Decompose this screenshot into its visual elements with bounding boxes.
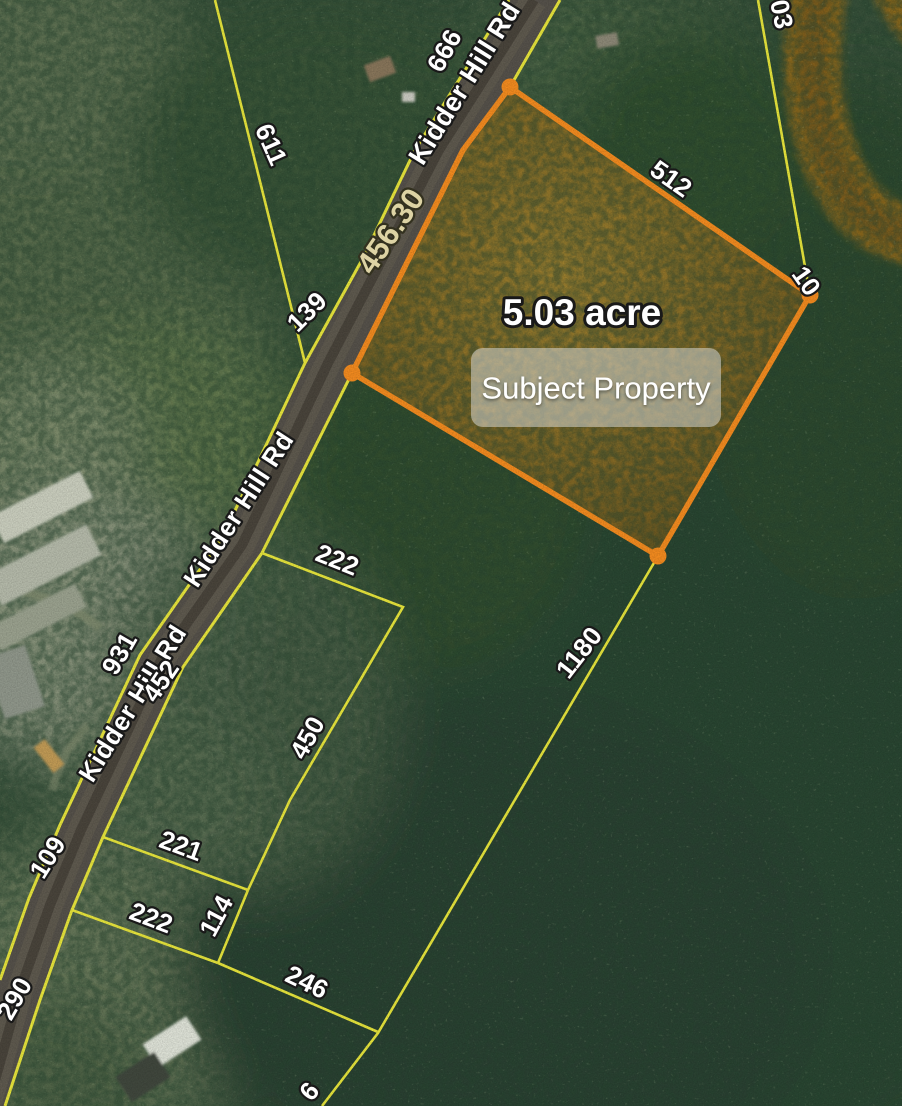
- subject-area-label: 5.03 acre: [503, 292, 661, 333]
- subject-property-chip-label: Subject Property: [481, 371, 711, 406]
- grain-overlay: [0, 0, 902, 1106]
- plat-map-image: Kidder Hill RdKidder Hill RdKidder Hill …: [0, 0, 902, 1106]
